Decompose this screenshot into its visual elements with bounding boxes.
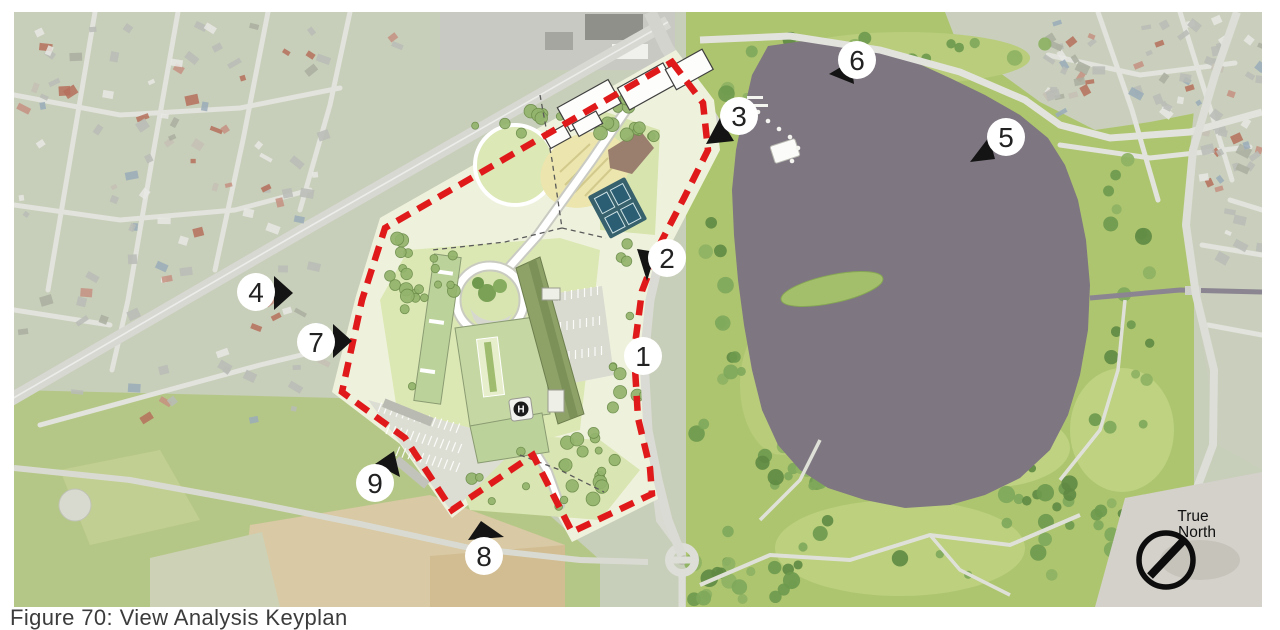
tree [414,285,423,294]
tree [696,591,711,606]
tree [408,383,415,390]
tree [808,481,817,490]
tree [970,38,980,48]
tree [1103,216,1118,231]
building-roof [545,32,573,50]
tree [434,281,441,288]
tree [784,472,793,481]
tree [648,131,659,142]
house-roof [128,383,141,392]
helipad: H [509,397,534,422]
tree [1104,421,1117,434]
tree [594,126,608,140]
view-marker-number: 3 [731,101,747,132]
tree [1107,498,1117,508]
tree [570,433,583,446]
gravel-patch [1160,540,1240,580]
view-marker-number: 6 [849,45,865,76]
view-marker-number: 4 [248,277,264,308]
house-roof [1199,173,1209,181]
tree [609,363,617,371]
tree [1093,520,1103,530]
tree [738,594,748,604]
tree [1121,153,1135,167]
tree [768,469,784,485]
tree [1140,374,1152,386]
view-marker-number: 7 [308,327,324,358]
tree [516,128,526,138]
house-roof [293,365,301,370]
tree [723,365,738,380]
tree [755,456,769,470]
tree [1038,532,1052,546]
service-block [548,390,564,412]
aerial-keyplan-map: H 123456789 True North [0,0,1280,623]
tree [732,579,748,595]
tree [746,567,755,576]
house-roof [1255,75,1263,83]
tree [634,122,646,134]
tree [1063,488,1076,501]
house-roof [58,86,70,96]
tree [500,118,511,129]
drive-tree [493,279,507,293]
view-marker-1: 1 [624,337,662,375]
house-roof [282,188,293,199]
tree [1139,420,1148,429]
tree [769,591,781,603]
tree [722,526,733,537]
tree [746,45,758,57]
tree [488,497,495,504]
tree [822,515,833,526]
helipad-label: H [517,405,524,416]
view-analysis-keyplan-figure: H 123456789 True North Figure [0,0,1280,623]
house-roof [39,102,46,110]
compass-label-line1: True [1177,508,1208,525]
tree [597,467,606,476]
tree [517,447,526,456]
tree [1037,484,1054,501]
tree [475,473,483,481]
tree [559,459,572,472]
tree [954,43,964,53]
tree [1110,170,1121,181]
view-marker-number: 9 [367,468,383,499]
tree [715,315,730,330]
tree [794,560,803,569]
tree [586,492,600,506]
house-roof [157,218,170,225]
tree [390,280,401,291]
tree [1094,505,1107,518]
house-roof [191,159,196,163]
tree [717,277,734,294]
drive-tree [472,277,484,289]
tree [595,480,608,493]
house-roof [69,53,82,62]
tree [1038,37,1051,50]
view-marker-number: 5 [998,122,1014,153]
tree [560,496,568,504]
tree [946,39,955,48]
tree [1143,266,1156,279]
tree [729,351,740,362]
house-roof [1050,87,1057,93]
tree [1002,518,1013,529]
tree [699,244,713,258]
tree [1145,338,1154,347]
view-marker-number: 1 [635,341,651,372]
tree [722,557,735,570]
tree [813,526,828,541]
tree [614,386,627,399]
tree [626,312,634,320]
tree [737,367,746,376]
tree [1112,204,1122,214]
house-roof [179,267,192,277]
house-roof [128,254,137,264]
view-marker-number: 2 [659,243,675,274]
tree [622,239,632,249]
tree [698,419,709,430]
service-block [542,288,560,300]
tree [566,480,578,492]
tree [768,561,781,574]
tree [595,447,602,454]
tree [714,245,727,258]
house-roof [291,406,297,412]
tree [620,128,633,141]
tree [472,122,479,129]
house-roof [278,265,288,272]
tree [577,446,588,457]
house-roof [1256,243,1266,253]
tree [783,572,800,589]
tree [609,454,620,465]
tree [431,264,439,272]
figure-caption: Figure 70: View Analysis Keyplan [10,606,710,630]
tree [400,289,414,303]
tree [1131,370,1140,379]
aerial-basemap: H [10,12,1270,607]
tree [400,305,409,314]
tree [1046,569,1058,581]
tree [522,483,529,490]
tree [1089,413,1102,426]
farm-silo-pad [59,489,91,521]
tree [1052,502,1061,511]
tree [1103,185,1114,196]
tree [998,486,1015,503]
tree [1135,228,1152,245]
house-roof [312,172,318,178]
tree [401,268,413,280]
tree [1030,544,1046,560]
tree [1007,50,1023,66]
house-roof [1092,66,1105,74]
tree [621,256,631,266]
view-marker-number: 8 [476,541,492,572]
tree [798,542,807,551]
tree [430,255,438,263]
tree [1127,320,1136,329]
tree [1022,496,1032,506]
tree [892,550,908,566]
tree [448,251,457,260]
house-roof [19,195,25,201]
tree [705,217,717,229]
tree [607,402,618,413]
house-roof [89,27,97,33]
tree [395,247,406,258]
tree [447,281,455,289]
house-roof [80,288,92,297]
tree [391,232,404,245]
tree [1104,350,1118,364]
house-roof [1177,96,1184,104]
tree [420,294,428,302]
tree [588,427,599,438]
